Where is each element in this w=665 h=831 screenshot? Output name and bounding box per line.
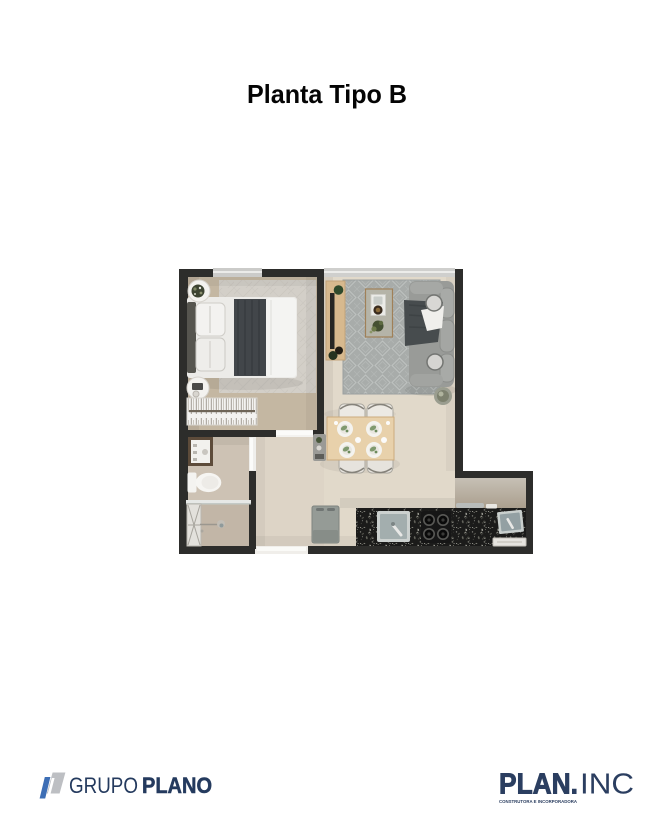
svg-text:PLAN.: PLAN. (499, 769, 578, 801)
svg-text:GRUPO: GRUPO (69, 773, 138, 798)
svg-text:INC: INC (580, 769, 634, 801)
svg-text:PLANO: PLANO (142, 773, 212, 798)
svg-text:Planta Tipo B: Planta Tipo B (247, 79, 407, 109)
svg-text:CONSTRUTORA E INCORPORADORA: CONSTRUTORA E INCORPORADORA (499, 799, 577, 805)
